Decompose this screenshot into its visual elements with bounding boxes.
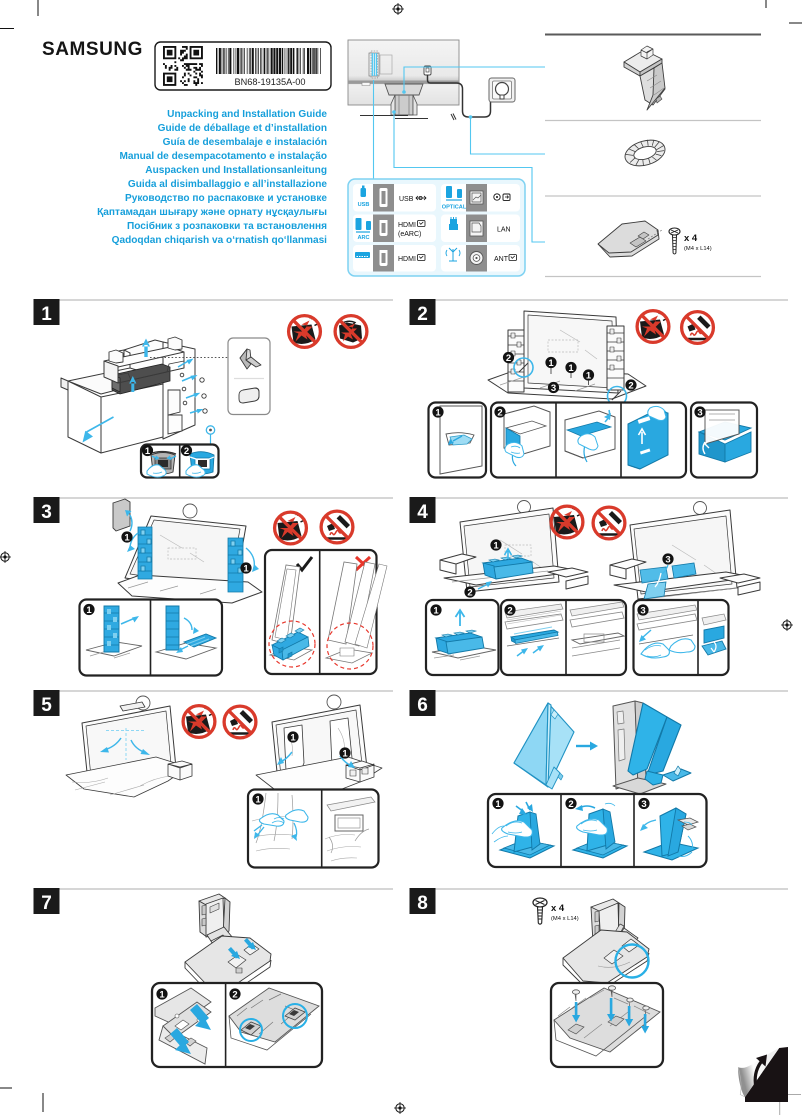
svg-text:ANT: ANT	[494, 256, 509, 263]
svg-text:x 4: x 4	[551, 903, 565, 914]
svg-text:HDMI: HDMI	[398, 222, 416, 229]
svg-text:(M4 x L14): (M4 x L14)	[551, 916, 579, 922]
svg-text:2: 2	[417, 304, 428, 325]
svg-text:(M4 x L14): (M4 x L14)	[684, 246, 712, 252]
svg-text:LAN: LAN	[497, 227, 511, 234]
svg-text:5: 5	[41, 695, 52, 716]
svg-text:3: 3	[41, 502, 52, 523]
svg-text:USB: USB	[358, 202, 370, 208]
svg-text:7: 7	[41, 893, 52, 914]
svg-text:HDMI: HDMI	[398, 256, 416, 263]
svg-text:USB: USB	[399, 196, 414, 203]
svg-text:4: 4	[417, 502, 428, 523]
svg-text:6: 6	[417, 695, 428, 716]
svg-text:(eARC): (eARC)	[398, 231, 421, 238]
svg-text:ARC: ARC	[357, 235, 369, 241]
svg-text:8: 8	[417, 893, 428, 914]
svg-text:1: 1	[41, 304, 52, 325]
svg-text:x 4: x 4	[684, 233, 698, 244]
svg-text:OPTICAL: OPTICAL	[442, 205, 467, 211]
